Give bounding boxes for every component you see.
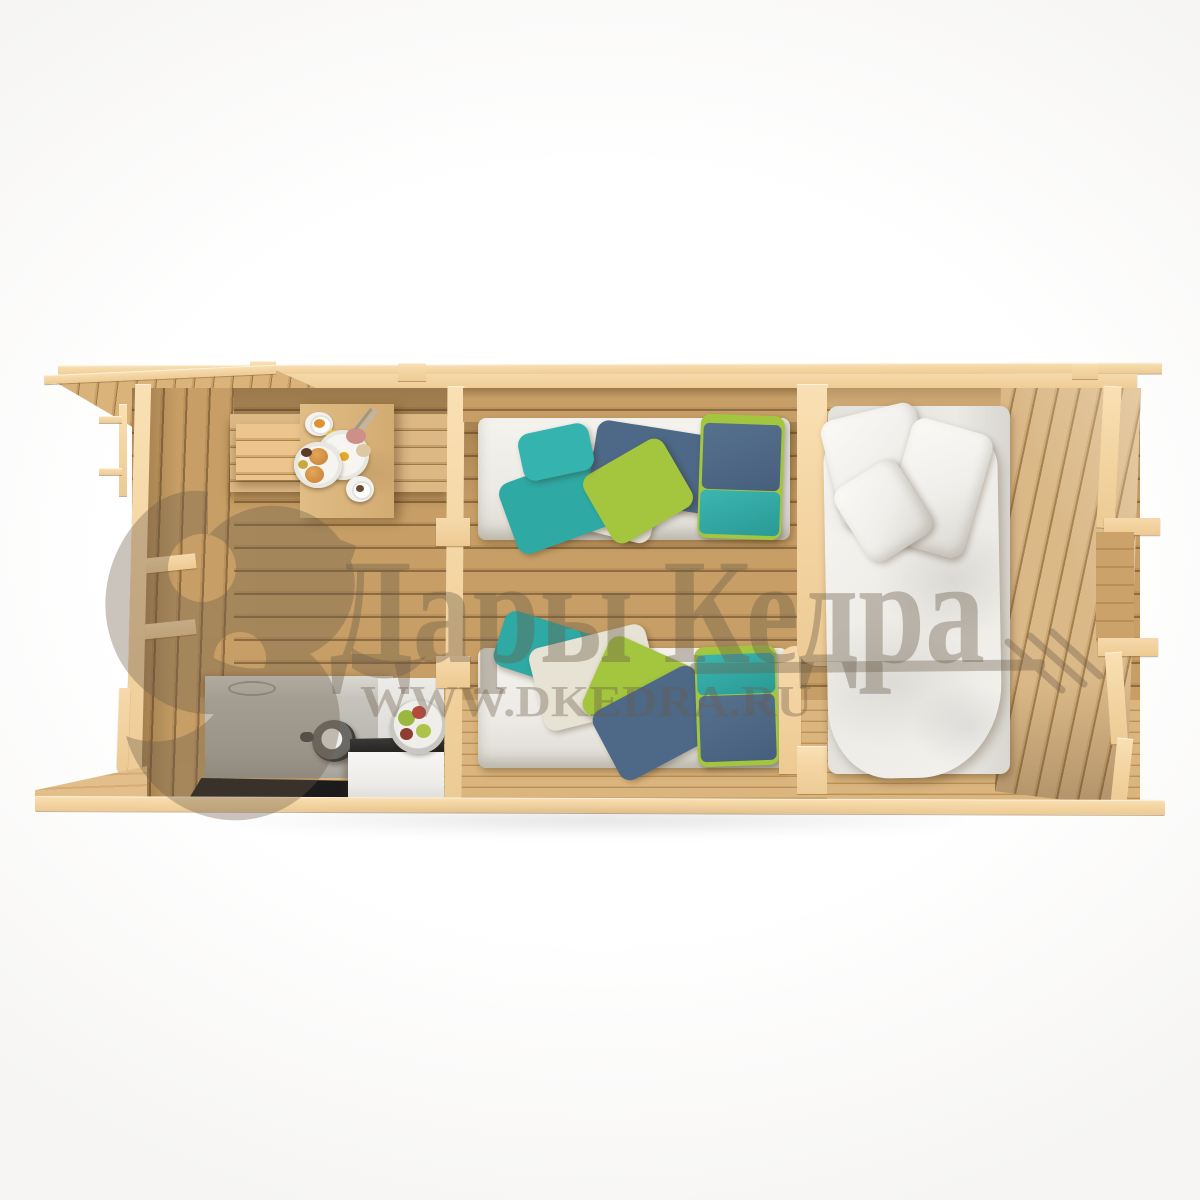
bed1-pillow-teal-panel [699, 490, 780, 537]
chocolate-piece [301, 448, 312, 457]
ground-shadow [60, 806, 1140, 842]
kettle-handle [300, 732, 314, 742]
corner-bench-step [236, 424, 302, 480]
tea-drink [356, 485, 364, 492]
log-end-block-2 [398, 363, 426, 381]
bed1-pillow-blue-panel [702, 423, 782, 492]
breakfast-table [300, 404, 394, 518]
apple-red [412, 706, 426, 719]
sink-outline [228, 681, 276, 696]
bread-slice [356, 444, 371, 457]
bed1-pillow [697, 414, 785, 541]
porch-rail-rung-1 [99, 416, 122, 423]
partition-2-cut-lower [797, 746, 828, 794]
bed2-pillow-blue-panel [699, 694, 777, 763]
partition-1-cut [445, 386, 465, 806]
coffee-drink [314, 419, 325, 428]
render-canvas: Дары Кедра WWW.DKEDRA.RU [0, 0, 1200, 1200]
right-window-recess [1096, 532, 1134, 642]
bed2-pillow-teal-panel [696, 653, 775, 696]
partition-1-ledge-bottom [436, 656, 470, 688]
apple-dark [400, 728, 413, 740]
bed2-pillow [694, 645, 780, 768]
porch-rail-rung-2 [99, 468, 122, 475]
apple-green-2 [416, 724, 431, 738]
butter-piece [298, 460, 308, 469]
bread-roll-2 [305, 466, 324, 483]
log-end-block-3 [1072, 363, 1098, 379]
partition-1-ledge-top [436, 518, 470, 546]
